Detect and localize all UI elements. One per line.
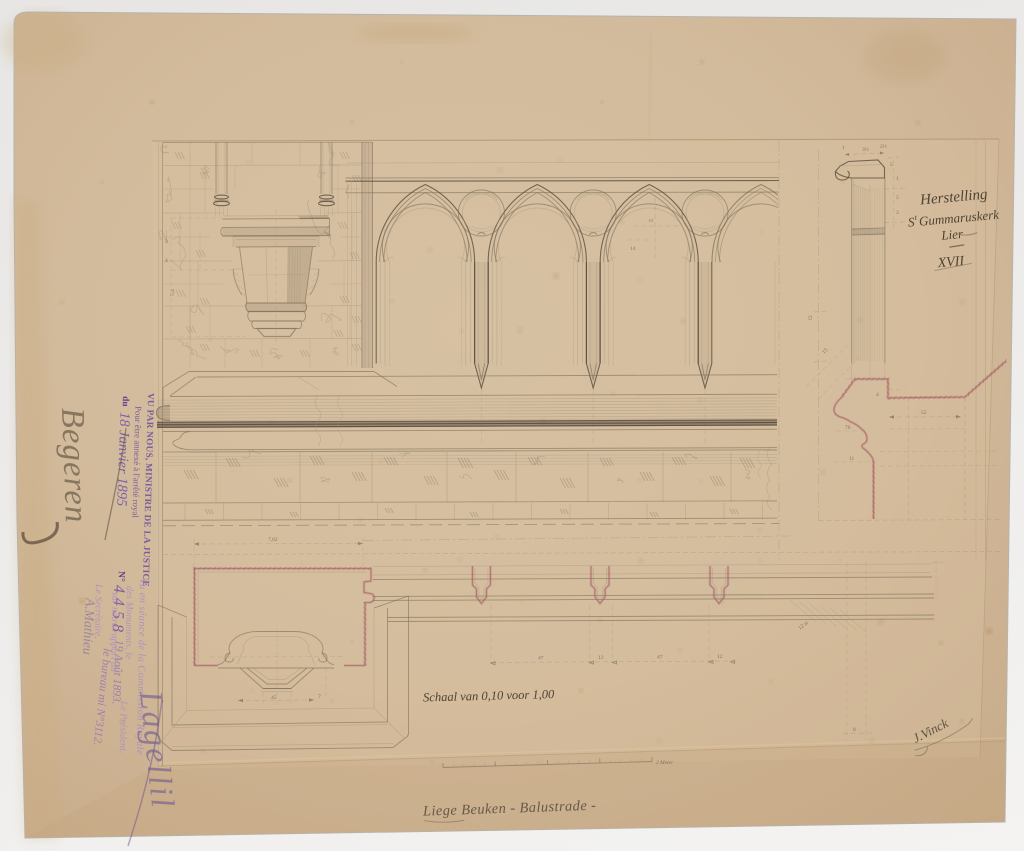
svg-text:3: 3 (165, 239, 168, 245)
svg-text:Begeren: Begeren (54, 407, 94, 524)
svg-text:14: 14 (630, 246, 636, 252)
svg-text:7: 7 (318, 694, 321, 700)
svg-text:2 Meter: 2 Meter (656, 760, 674, 766)
svg-text:1: 1 (896, 176, 899, 182)
svg-text:5: 5 (896, 195, 899, 201)
svg-text:11: 11 (849, 456, 855, 462)
svg-text:2½: 2½ (880, 143, 887, 150)
svg-text:8: 8 (853, 727, 856, 733)
svg-text:47: 47 (657, 655, 663, 661)
svg-text:XVII: XVII (936, 254, 966, 271)
svg-text:12: 12 (598, 655, 604, 661)
svg-text:3½: 3½ (862, 146, 869, 153)
svg-text:45: 45 (271, 695, 277, 701)
svg-text:3: 3 (896, 210, 899, 216)
svg-text:7,82: 7,82 (268, 537, 278, 543)
svg-text:f2: f2 (807, 315, 814, 320)
svg-text:4: 4 (165, 258, 168, 264)
svg-text:du: du (120, 396, 130, 408)
svg-text:5: 5 (890, 162, 893, 168)
svg-text:ct: ct (649, 218, 653, 224)
svg-text:4: 4 (876, 392, 879, 398)
svg-text:12: 12 (717, 654, 723, 660)
svg-text:76: 76 (845, 425, 851, 431)
svg-text:47: 47 (538, 656, 544, 662)
svg-text:18 Janvier 1895: 18 Janvier 1895 (113, 412, 132, 507)
svg-text:5,4: 5,4 (170, 289, 176, 296)
svg-text:A.Mathieu: A.Mathieu (80, 597, 98, 656)
svg-text:Le Président,: Le Président, (117, 700, 129, 753)
svg-text:55: 55 (921, 410, 927, 416)
svg-text:1: 1 (842, 145, 845, 151)
svg-text:N°: N° (116, 571, 127, 582)
